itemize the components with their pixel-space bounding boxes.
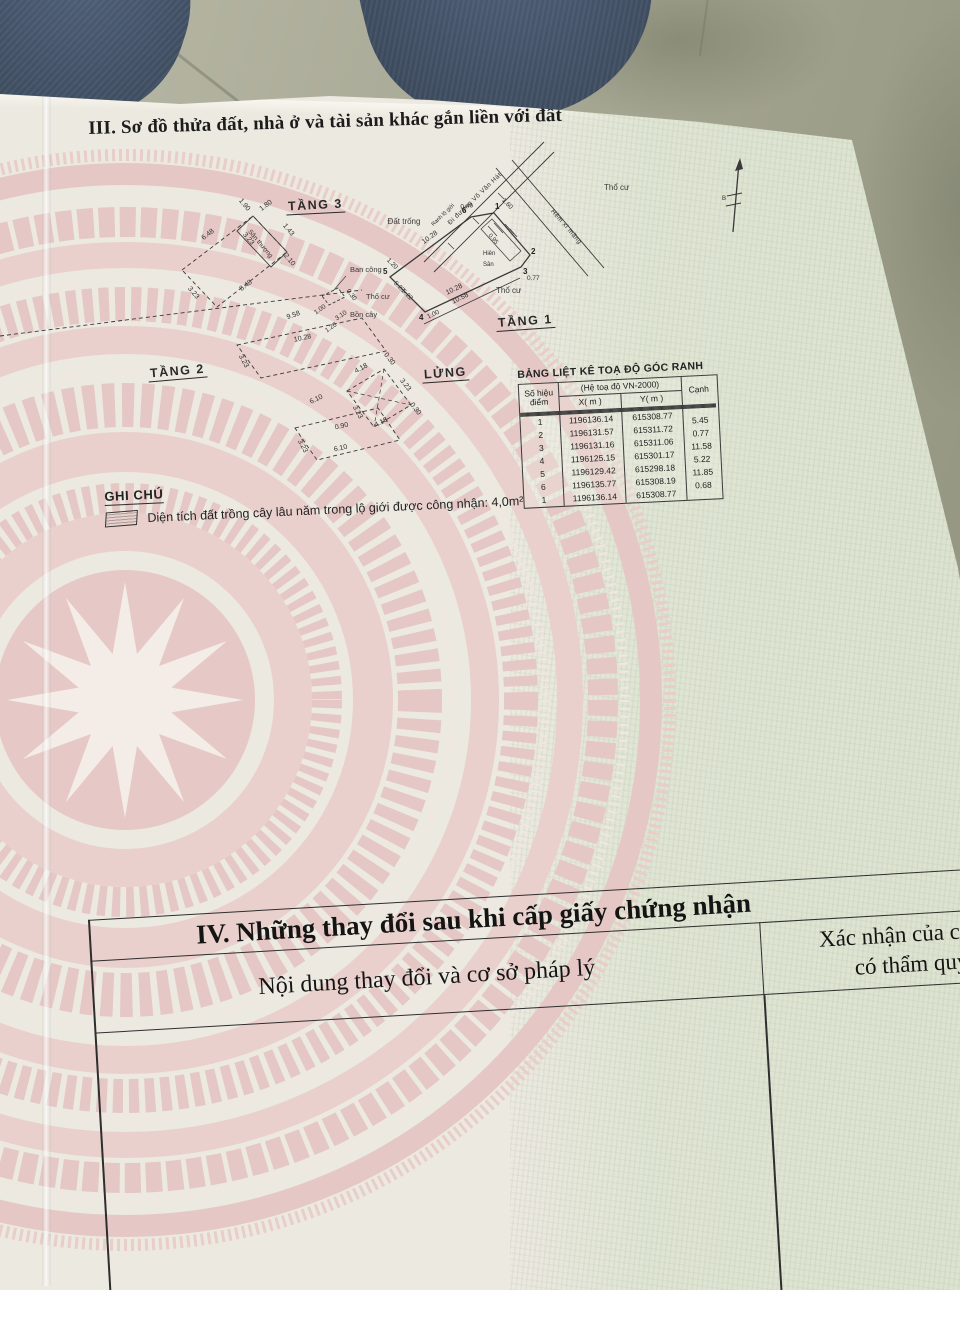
north-arrow-icon <box>726 158 743 232</box>
plan-title-tang3: TẦNG 3 <box>286 196 346 215</box>
land-use-label: Đất trống <box>388 217 421 226</box>
dim-label: 0.90 <box>334 422 349 432</box>
dim-label: 3.23 <box>398 378 412 393</box>
land-use-label: Thổ cư <box>604 183 630 192</box>
dim-label: 0.30 <box>345 288 359 303</box>
dim-label: 3.23 <box>237 354 250 369</box>
plan-title-lung: LỬNG <box>421 364 469 383</box>
dim-label: 0.95 <box>487 233 500 246</box>
dim-label: 0.30 <box>408 402 422 417</box>
dim-label: 0.46 <box>460 202 474 211</box>
point-cell: 1 <box>524 493 565 508</box>
y-cell: 615308.77 <box>625 487 687 503</box>
tang3-balcony <box>322 276 346 305</box>
dim-label: 0.77 <box>527 275 540 282</box>
dim-label: 4.18 <box>354 362 369 375</box>
x-cell: 1196136.14 <box>564 490 626 506</box>
corner-number: 4 <box>419 313 424 322</box>
corner-number: 5 <box>383 267 388 276</box>
note-label: GHI CHÚ <box>104 486 164 506</box>
coordinate-table-grid: Số hiệu điểm (Hệ toạ độ VN-2000) Cạnh X(… <box>518 374 724 509</box>
dim-label: 9.58 <box>286 310 301 321</box>
dim-label: 10.28 <box>293 333 312 344</box>
yard-label: Sân <box>483 262 494 268</box>
land-use-label: Thổ cư <box>496 286 522 295</box>
dim-label: 0.30 <box>382 352 396 367</box>
dim-label: 3.10 <box>334 309 349 322</box>
tang3-outline <box>0 216 362 336</box>
col-header-point: Số hiệu điểm <box>519 383 560 413</box>
corner-number: 1 <box>495 202 500 211</box>
dim-label: 2.10 <box>282 253 296 268</box>
dim-label: 6.10 <box>309 394 324 406</box>
section4-table: IV. Những thay đổi sau khi cấp giấy chứn… <box>68 862 960 1340</box>
dim-label: 1.43 <box>281 223 295 238</box>
corner-number: 2 <box>531 247 536 256</box>
dim-label: 6.10 <box>333 444 348 454</box>
dim-label: 3.23 <box>351 405 364 420</box>
garden-label: Bồn cây <box>350 310 377 319</box>
north-label: B <box>722 196 726 202</box>
dim-label: 1.00 <box>313 303 328 316</box>
alley-label: Hẻm xi măng <box>549 208 583 246</box>
dim-label: 4.18 <box>374 416 389 429</box>
balcony-label: Ban công <box>350 265 382 274</box>
dim-label: 1.90 <box>237 198 251 213</box>
road-label: Đi đường Võ Văn Hát <box>447 171 504 226</box>
certificate-page: III. Sơ đồ thửa đất, nhà ở và tài sản kh… <box>0 0 960 1290</box>
tang2-outline <box>237 318 400 460</box>
dim-label: 10.28 <box>421 230 439 246</box>
dim-label: 8.48 <box>239 279 254 293</box>
table-column-divider <box>763 995 782 1301</box>
dim-label: 3.23 <box>296 439 309 454</box>
dim-label: 1.80 <box>259 199 274 213</box>
porch-label: Hiên <box>483 251 495 257</box>
dim-label: 6.48 <box>201 228 216 242</box>
hatch-swatch-icon <box>105 510 138 528</box>
coordinate-table: BẢNG LIỆT KÊ TOẠ ĐỘ GÓC RANH Số hiệu điể… <box>517 359 724 509</box>
dim-label: 3.23 <box>186 286 200 301</box>
edge-cell: 0.68 <box>686 485 721 500</box>
land-use-label: Thổ cư <box>366 292 390 301</box>
col-header-edge: Cạnh <box>681 375 716 405</box>
dim-label: 1.20 <box>324 321 339 334</box>
